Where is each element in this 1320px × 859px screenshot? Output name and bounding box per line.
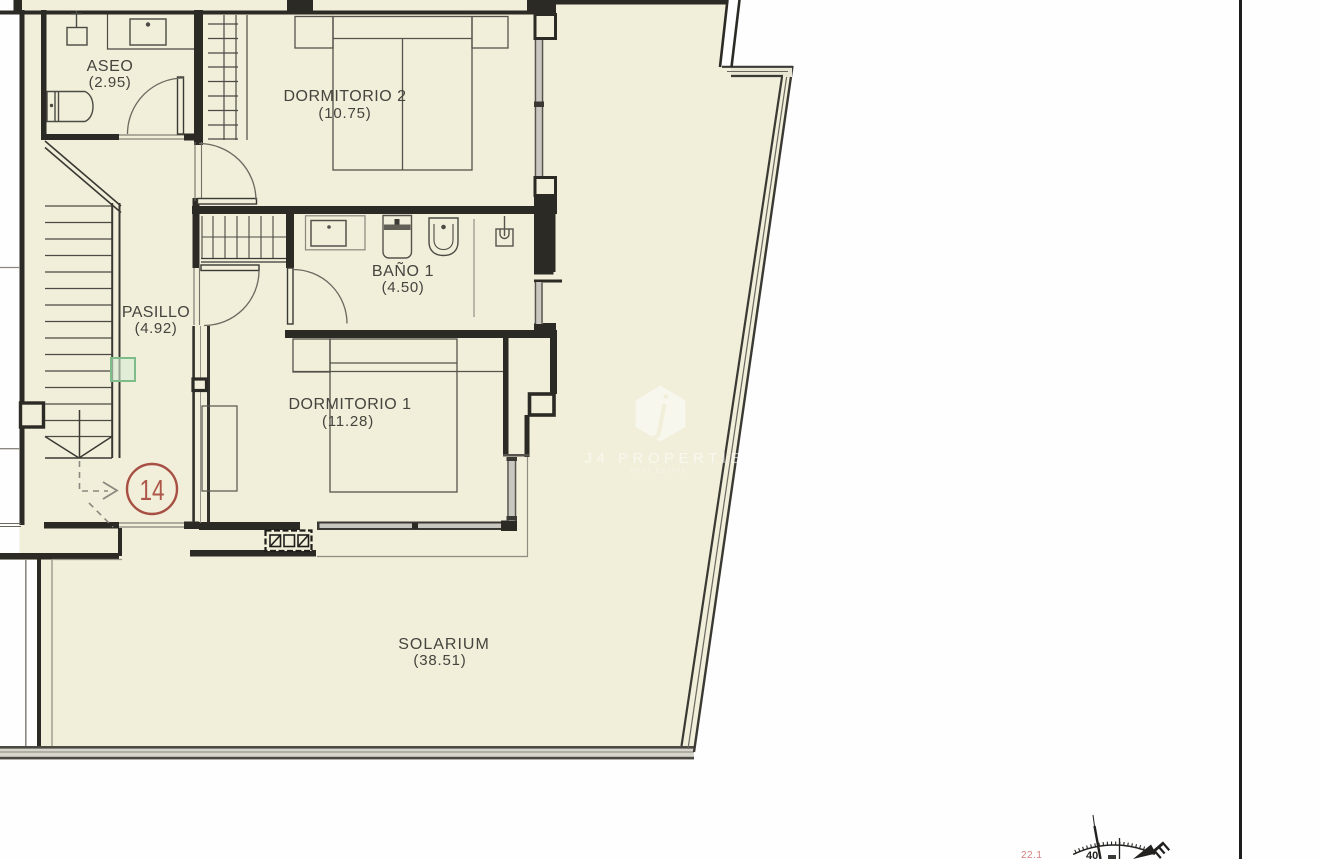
svg-text:(4.50): (4.50) <box>382 279 425 296</box>
svg-text:40: 40 <box>1086 850 1098 859</box>
svg-text:14: 14 <box>140 475 165 507</box>
svg-text:PASILLO: PASILLO <box>122 304 190 321</box>
svg-text:J4 PROPERTIES: J4 PROPERTIES <box>585 450 760 467</box>
svg-text:(2.95): (2.95) <box>89 74 132 91</box>
svg-text:22.1: 22.1 <box>1021 850 1042 859</box>
svg-text:REAL ESTATE: REAL ESTATE <box>631 468 687 475</box>
svg-text:(10.75): (10.75) <box>318 105 371 122</box>
svg-text:ASEO: ASEO <box>87 58 134 75</box>
svg-text:DORMITORIO 2: DORMITORIO 2 <box>283 88 406 105</box>
svg-text:(38.51): (38.51) <box>413 652 466 669</box>
svg-text:(4.92): (4.92) <box>135 320 178 337</box>
svg-text:E: E <box>1148 838 1173 859</box>
svg-text:(11.28): (11.28) <box>322 413 374 430</box>
svg-text:BAÑO 1: BAÑO 1 <box>372 260 434 280</box>
svg-text:DORMITORIO 1: DORMITORIO 1 <box>288 396 411 413</box>
svg-text:SOLARIUM: SOLARIUM <box>398 636 490 653</box>
